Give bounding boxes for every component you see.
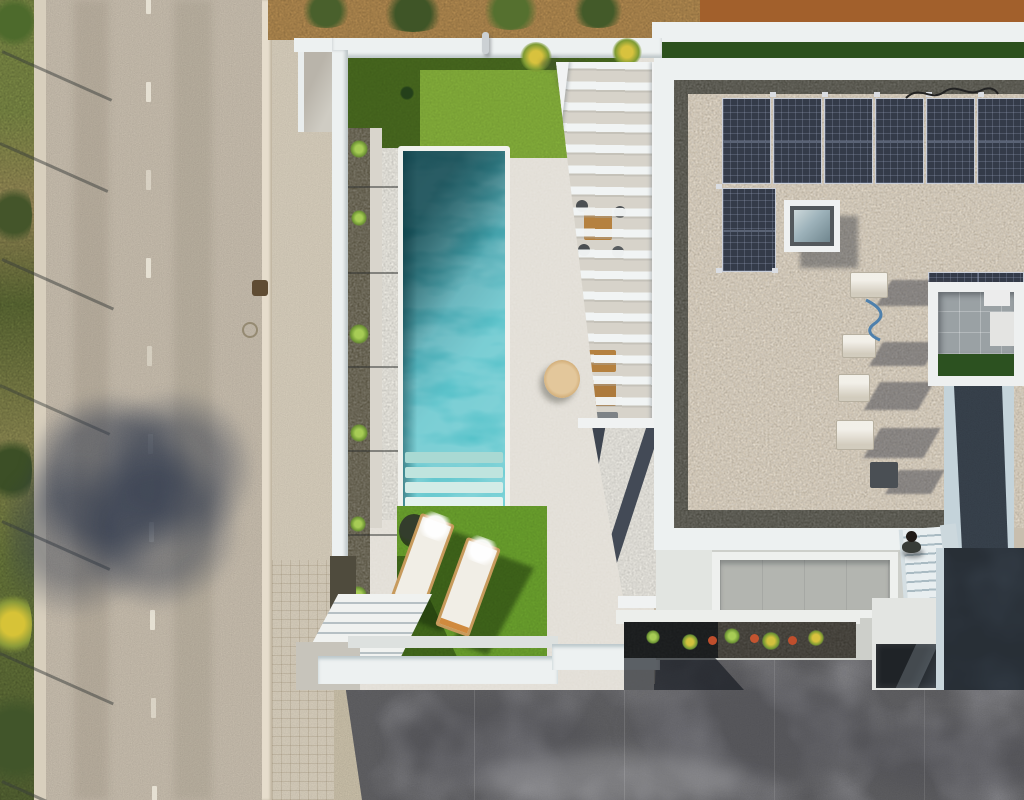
deck-edge-strip [348,636,558,648]
irrigation-wire [348,534,402,536]
panel-bracket [772,268,778,273]
flower-bed [624,622,856,658]
swimming-pool-water [403,151,505,513]
panel-bracket [874,92,880,97]
irrigation-wire [348,272,402,274]
courtyard-grass [938,354,1014,376]
fence-shadow [1,50,112,102]
manhole-cover [242,322,258,338]
person-body [902,541,921,553]
roof-parapet-top [654,58,1024,80]
solar-panel [722,98,771,184]
courtyard-furniture [990,312,1014,346]
parasol [544,360,580,398]
bush [378,0,448,32]
bed-flower-red [750,634,759,643]
fence-shadow [1,258,114,310]
fence-shadow [0,652,114,705]
pool-step [405,452,503,463]
skylight [784,200,840,252]
roof-cable [904,82,1000,104]
courtyard-furniture [984,290,1010,306]
walkway-lower-dark [944,548,1024,690]
inner-courtyard [928,282,1024,386]
irrigation-wire [348,366,402,368]
solar-array-top-row [722,98,1024,184]
shrub [351,210,367,226]
solar-panel-block-left [722,188,776,272]
ac-unit [850,272,888,298]
small-tree [400,86,414,100]
shrub [350,140,368,158]
panel-bracket [770,92,776,97]
person-head [906,531,917,542]
side-path [370,128,382,528]
terrain-top [268,0,1024,40]
shrub [350,516,366,532]
bed-plant [808,630,824,646]
irrigation-wire [348,450,402,452]
pool-step [405,482,503,493]
roof-parapet-left [654,58,674,550]
bush [568,0,628,28]
bed-shadow [624,622,718,658]
bed-flower-red [708,636,717,645]
panel-bracket [822,92,828,97]
shrub [349,324,369,344]
concrete-stain [854,722,1024,792]
glass-reflection [896,644,939,688]
aerial-villa-scene [0,0,1024,800]
fence-shadow [0,142,108,193]
roof-dark-border-bottom [674,510,946,528]
expansion-joint [774,652,775,800]
bed-plant [646,630,660,644]
irrigation-wire [348,186,402,188]
shrub [350,424,368,442]
bed-plant [762,632,780,650]
ac-unit [836,420,874,450]
solar-panel [824,98,873,184]
bed-flower-red [788,636,797,645]
back-wall [652,22,1024,42]
bush [478,0,544,30]
pool-step [405,467,503,478]
bed-plant [682,634,698,650]
skylight-glass [794,210,830,242]
solar-panel [875,98,924,184]
panel-bracket [716,184,722,189]
concrete-light-patch [484,752,744,800]
solar-panel [926,98,975,184]
bush [298,0,354,28]
roof-equipment-box [870,462,898,488]
house-roof [654,58,1024,550]
outdoor-shower-fixture [482,32,489,54]
drain-grate [252,280,268,296]
entry-porch-pad [712,552,898,618]
ac-unit [838,374,870,402]
fence-shadow [1,780,112,800]
tree-shadow-on-road [8,378,278,618]
panel-bracket [716,268,722,273]
roof-dark-border-left [674,80,688,528]
solar-panel [773,98,822,184]
walkway-light-edge [936,548,944,690]
potted-plant-yellow [612,38,642,66]
solar-panel [977,98,1024,184]
flex-duct [860,298,890,342]
south-wall [318,656,558,684]
bed-plant [724,628,740,644]
